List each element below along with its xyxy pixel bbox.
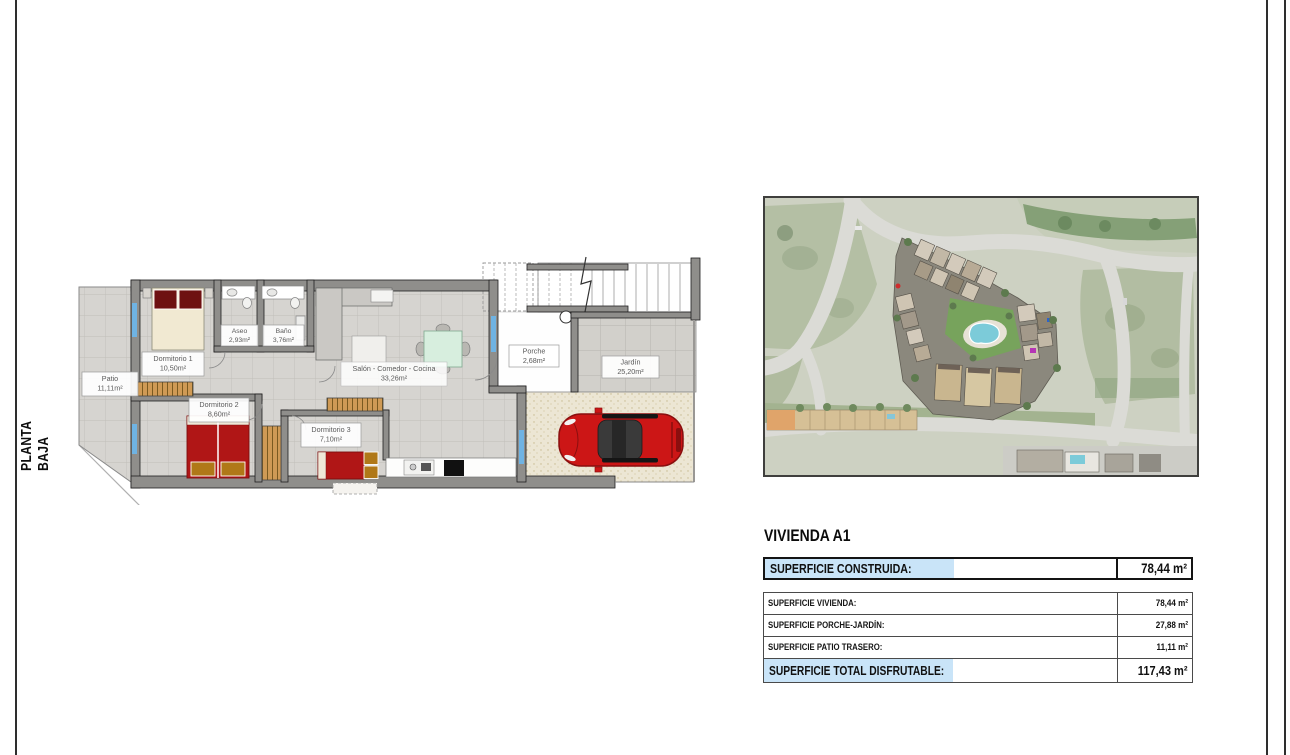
svg-text:Dormitorio 3: Dormitorio 3: [311, 425, 350, 434]
tv-unit: [371, 290, 393, 302]
jardin-floor: [578, 315, 696, 392]
bed-dorm1: [143, 288, 213, 350]
svg-text:33,26m²: 33,26m²: [381, 374, 408, 383]
svg-text:8,60m²: 8,60m²: [208, 410, 231, 419]
room-label-porche: Porche 2,68m²: [509, 345, 559, 367]
total-value-cell: 117,43 m²: [1117, 659, 1192, 682]
svg-text:Jardín: Jardín: [621, 358, 641, 367]
magenta-detail: [1030, 348, 1036, 353]
svg-text:2,93m²: 2,93m²: [229, 337, 251, 344]
svg-text:Salón - Comedor - Cocina: Salón - Comedor - Cocina: [352, 364, 435, 373]
wardrobe-dorm1: [137, 382, 193, 396]
svg-text:Porche: Porche: [523, 347, 546, 356]
svg-text:10,50m²: 10,50m²: [160, 364, 187, 373]
frame-right-line-inner: [1266, 0, 1268, 755]
floor-name-label: PLANTA BAJA: [24, 398, 46, 494]
plan-sheet: PLANTA BAJA: [0, 0, 1290, 755]
room-label-patio: Patio 11,11m²: [82, 372, 138, 396]
room-label-dorm3: Dormitorio 3 7,10m²: [301, 423, 361, 447]
table-row-total: SUPERFICIE TOTAL DISFRUTABLE: 117,43 m²: [764, 659, 1192, 682]
svg-text:Dormitorio 2: Dormitorio 2: [199, 400, 238, 409]
room-label-salon: Salón - Comedor - Cocina 33,26m²: [341, 362, 447, 386]
unit-title-text: VIVIENDA A1: [764, 526, 851, 546]
table-row-patio-trasero: SUPERFICIE PATIO TRASERO: 11,11 m²: [764, 637, 1192, 659]
unit-title: VIVIENDA A1: [764, 526, 870, 546]
frame-right-line-outer: [1284, 0, 1286, 755]
room-label-dorm2: Dormitorio 2 8,60m²: [189, 398, 249, 422]
construida-label-cell: SUPERFICIE CONSTRUIDA:: [765, 559, 954, 578]
kitchen-counter: [386, 458, 516, 477]
room-label-bano: Baño 3,76m²: [263, 325, 304, 346]
pool: [969, 323, 999, 343]
bed-dorm2: [187, 416, 249, 478]
wardrobe-dorm3: [327, 398, 383, 411]
svg-text:7,10m²: 7,10m²: [320, 435, 343, 444]
table-row-porche-jardin: SUPERFICIE PORCHE-JARDÍN: 27,88 m²: [764, 615, 1192, 637]
room-label-jardin: Jardín 25,20m²: [602, 356, 659, 378]
floor-plan-drawing: Patio 11,11m² Dormitorio 1 10,50m² Aseo …: [60, 250, 710, 505]
superficie-construida-row: SUPERFICIE CONSTRUIDA: 78,44 m²: [763, 557, 1193, 580]
svg-text:2,68m²: 2,68m²: [523, 356, 546, 365]
construida-spacer: [954, 559, 1116, 578]
svg-text:Aseo: Aseo: [232, 328, 248, 335]
site-aerial-image: [763, 196, 1199, 477]
svg-text:3,76m²: 3,76m²: [273, 337, 295, 344]
table-row-vivienda: SUPERFICIE VIVIENDA: 78,44 m²: [764, 593, 1192, 615]
entry-step: [333, 483, 377, 494]
svg-text:Patio: Patio: [102, 374, 118, 383]
surface-detail-table: SUPERFICIE VIVIENDA: 78,44 m² SUPERFICIE…: [763, 592, 1193, 683]
svg-text:Baño: Baño: [276, 328, 292, 335]
wardrobe-hall: [262, 426, 281, 480]
stair-column: [560, 311, 572, 323]
total-label-cell: SUPERFICIE TOTAL DISFRUTABLE:: [764, 659, 953, 682]
cooktop: [444, 460, 464, 476]
car: [559, 408, 683, 472]
room-label-aseo: Aseo 2,93m²: [221, 325, 258, 346]
svg-text:25,20m²: 25,20m²: [617, 367, 644, 376]
svg-text:11,11m²: 11,11m²: [97, 384, 123, 393]
room-label-dorm1: Dormitorio 1 10,50m²: [142, 352, 204, 376]
frame-left-line: [15, 0, 17, 755]
coffee-table: [352, 336, 386, 366]
bottom-right-block: [1003, 446, 1197, 475]
svg-text:Dormitorio 1: Dormitorio 1: [153, 354, 192, 363]
construida-value-cell: 78,44 m²: [1116, 559, 1191, 578]
floor-name-text: PLANTA BAJA: [18, 421, 52, 471]
